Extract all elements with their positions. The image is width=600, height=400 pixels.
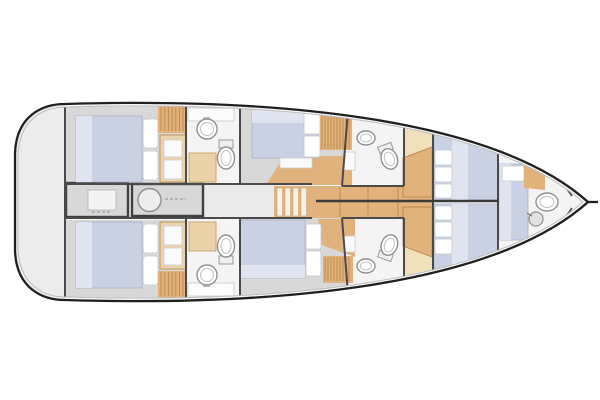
pillow <box>435 150 452 165</box>
galley-island-unit <box>132 184 203 216</box>
companionway-steps <box>274 186 310 218</box>
pillow <box>502 166 524 181</box>
pillow <box>306 224 321 249</box>
pillow <box>143 256 158 285</box>
counter-hatch <box>88 190 116 210</box>
pillow <box>143 224 158 253</box>
cabinet-shelf <box>164 226 182 245</box>
pillow <box>143 151 158 180</box>
step-tread <box>293 188 299 216</box>
pillow <box>435 167 452 182</box>
step-tread <box>277 188 283 216</box>
step-tread <box>301 188 307 216</box>
hanger-stripes <box>161 107 183 131</box>
toilet <box>536 193 558 211</box>
washbasin <box>357 131 375 145</box>
floor-plan-svg <box>0 0 600 400</box>
corridor-counter-unit <box>66 183 128 217</box>
vanity-counter <box>188 283 234 296</box>
cabinet-shelf <box>164 140 182 157</box>
shower-tray <box>189 153 216 182</box>
galley-sink <box>138 189 161 212</box>
aft-cabin-starboard <box>76 222 186 298</box>
pillow <box>435 239 452 254</box>
pillow <box>306 251 321 276</box>
bed-sheet <box>76 222 92 288</box>
pillow <box>304 136 320 157</box>
step-tread <box>285 188 291 216</box>
cabinet-shelf <box>164 248 182 265</box>
yacht-floor-plan <box>0 0 600 400</box>
hanger-stripes <box>161 272 183 296</box>
pillow <box>435 222 452 237</box>
shower-tray <box>189 222 216 251</box>
vanity-counter <box>188 108 234 121</box>
interior <box>65 106 586 298</box>
cabinet-shelf <box>164 160 182 179</box>
pillow <box>435 184 452 198</box>
pillow <box>435 206 452 220</box>
nightstand <box>280 158 312 168</box>
pillow <box>143 119 158 148</box>
pillow <box>304 113 320 134</box>
bed-sheet <box>76 116 92 182</box>
bed-sheet <box>240 265 305 278</box>
washbasin <box>529 212 543 226</box>
washbasin <box>357 259 375 273</box>
aft-cabin-port <box>76 106 186 182</box>
